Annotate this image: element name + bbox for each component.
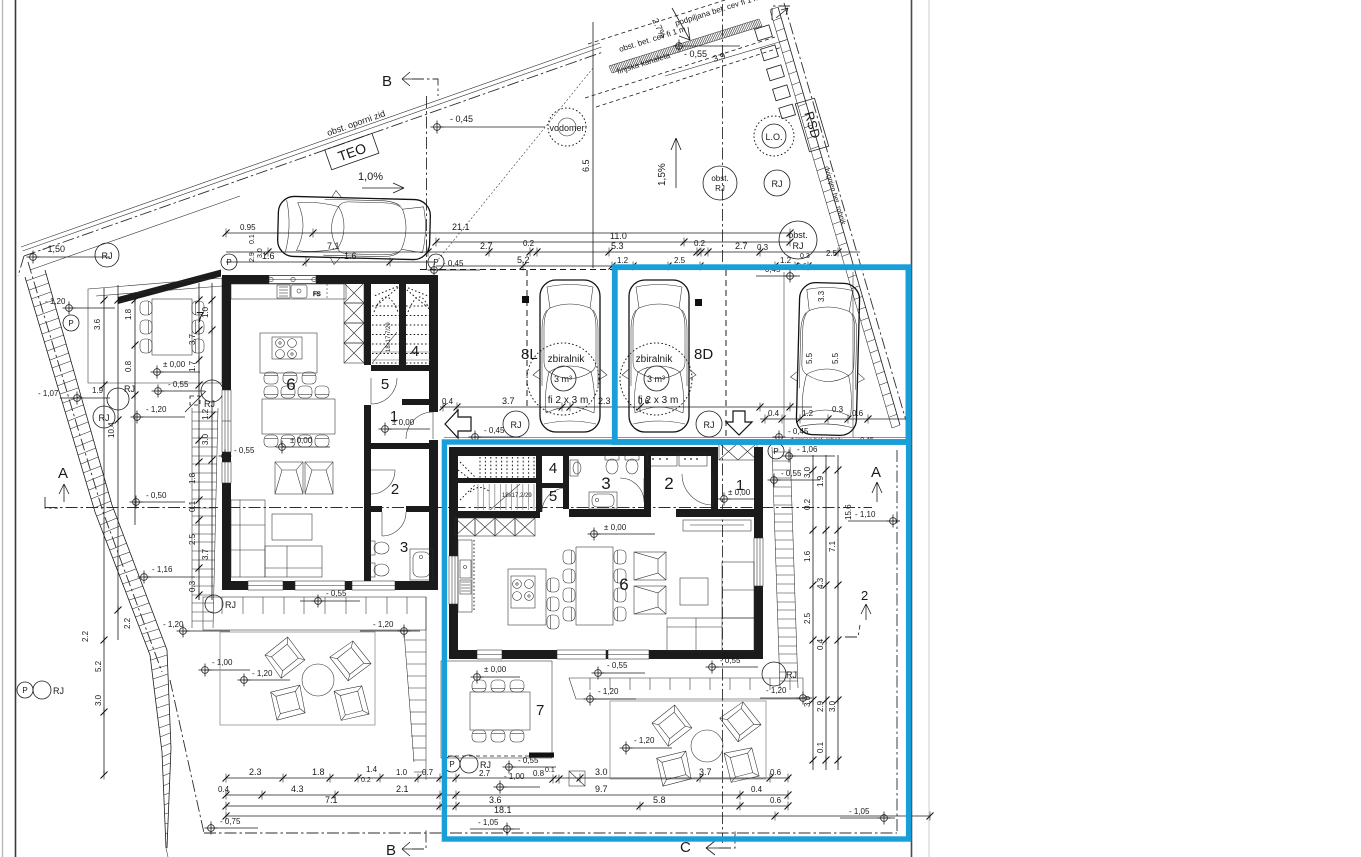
svg-text:1.2: 1.2 [802, 409, 814, 418]
svg-text:1.2: 1.2 [201, 408, 210, 420]
svg-text:18x17,2/29: 18x17,2/29 [502, 493, 532, 499]
svg-text:- 0,55: - 0,55 [607, 661, 628, 670]
svg-text:3.7: 3.7 [699, 767, 712, 777]
svg-text:RJ: RJ [204, 399, 215, 409]
svg-text:3.3: 3.3 [817, 290, 826, 302]
svg-text:2: 2 [664, 474, 673, 493]
svg-text:1.4: 1.4 [366, 765, 378, 774]
svg-text:± 0,00: ± 0,00 [163, 360, 186, 369]
svg-text:P: P [773, 447, 778, 456]
svg-text:0.6: 0.6 [770, 796, 782, 805]
svg-text:RJ: RJ [225, 600, 236, 610]
svg-text:0.4: 0.4 [768, 409, 780, 418]
svg-text:4: 4 [411, 343, 419, 360]
svg-text:obst.: obst. [711, 174, 728, 183]
svg-text:- 0,55: - 0,55 [781, 469, 802, 478]
svg-text:2.3: 2.3 [249, 767, 262, 777]
svg-text:1.8: 1.8 [124, 308, 133, 320]
svg-text:- 1,07: - 1,07 [38, 389, 59, 398]
svg-text:0.1: 0.1 [816, 741, 825, 753]
svg-text:3.0: 3.0 [201, 433, 210, 445]
svg-text:- 1,20: - 1,20 [766, 686, 787, 695]
svg-text:0.4: 0.4 [218, 785, 230, 794]
svg-text:2: 2 [391, 481, 399, 498]
svg-text:0.6: 0.6 [638, 397, 650, 406]
svg-text:7: 7 [536, 702, 544, 719]
svg-text:L.O.: L.O. [765, 132, 782, 142]
svg-text:- 0,45: - 0,45 [788, 427, 809, 436]
svg-text:0.8: 0.8 [533, 769, 545, 778]
svg-text:B: B [386, 842, 396, 857]
svg-text:RJ: RJ [704, 420, 715, 430]
svg-text:- 1,05: - 1,05 [849, 807, 870, 816]
svg-text:zbiralnik: zbiralnik [548, 354, 586, 365]
svg-text:- 1,20: - 1,20 [252, 669, 273, 678]
svg-text:4.3: 4.3 [291, 784, 304, 794]
svg-text:RJ: RJ [53, 686, 64, 696]
svg-text:5: 5 [381, 376, 389, 393]
svg-text:- 1,20: - 1,20 [373, 620, 394, 629]
svg-text:- 0,55: - 0,55 [684, 49, 707, 59]
svg-text:3.0: 3.0 [94, 694, 103, 706]
svg-text:- 1,00: - 1,00 [212, 658, 233, 667]
svg-text:RJ: RJ [786, 670, 797, 680]
svg-text:- 0,45: - 0,45 [450, 114, 473, 124]
svg-text:0.2: 0.2 [803, 498, 812, 510]
svg-text:10.4: 10.4 [107, 422, 116, 438]
svg-text:5.3: 5.3 [611, 241, 624, 251]
svg-text:- 1,50: - 1,50 [42, 244, 65, 254]
svg-text:- 0,75: - 0,75 [220, 817, 241, 826]
svg-text:0.4: 0.4 [816, 638, 825, 650]
svg-text:RJ: RJ [772, 179, 783, 189]
svg-text:0.4: 0.4 [442, 397, 454, 406]
svg-text:15.6: 15.6 [844, 504, 853, 520]
svg-text:A: A [871, 464, 881, 481]
svg-text:4.3: 4.3 [816, 577, 825, 589]
svg-text:6: 6 [286, 375, 295, 394]
svg-text:2.7: 2.7 [479, 769, 491, 778]
svg-text:2.9: 2.9 [816, 700, 825, 712]
svg-text:2.5: 2.5 [674, 256, 686, 265]
svg-text:- 1,20: - 1,20 [146, 405, 167, 414]
svg-text:5.8: 5.8 [653, 795, 666, 805]
svg-text:0.3: 0.3 [800, 253, 810, 260]
svg-text:- 0,55: - 0,55 [168, 380, 189, 389]
svg-text:0.6: 0.6 [770, 768, 782, 777]
svg-text:2.5: 2.5 [803, 612, 812, 624]
svg-text:8L: 8L [521, 346, 538, 363]
svg-text:1.8: 1.8 [188, 472, 197, 484]
svg-text:2.9: 2.9 [249, 252, 256, 262]
svg-text:± 0,00: ± 0,00 [484, 665, 507, 674]
svg-text:0.3: 0.3 [188, 580, 197, 592]
svg-text:2.3: 2.3 [598, 396, 611, 406]
svg-text:2.2: 2.2 [123, 617, 132, 629]
svg-text:3 m³: 3 m³ [554, 374, 572, 384]
svg-text:6: 6 [619, 575, 628, 594]
svg-text:7.1: 7.1 [828, 540, 837, 552]
svg-text:1.9: 1.9 [816, 475, 825, 487]
svg-text:RJ: RJ [102, 251, 113, 261]
svg-text:- 0,45: - 0,45 [443, 259, 464, 268]
svg-text:3.0: 3.0 [595, 767, 608, 777]
svg-text:± 0,00: ± 0,00 [290, 436, 313, 445]
svg-text:- 1,20: - 1,20 [634, 736, 655, 745]
svg-text:3.7: 3.7 [201, 548, 210, 560]
svg-text:P: P [226, 258, 231, 267]
svg-text:- 0,50: - 0,50 [146, 491, 167, 500]
svg-text:P: P [449, 760, 454, 769]
svg-text:3.0: 3.0 [257, 248, 264, 258]
svg-text:5.2: 5.2 [94, 660, 103, 672]
svg-text:3 m³: 3 m³ [647, 374, 665, 384]
svg-text:3.0: 3.0 [803, 466, 812, 478]
svg-text:11.0: 11.0 [610, 231, 627, 241]
svg-text:zbiralnik: zbiralnik [636, 354, 674, 365]
svg-text:0.6: 0.6 [852, 409, 864, 418]
svg-text:0.2: 0.2 [694, 239, 706, 248]
svg-text:1.7: 1.7 [188, 360, 197, 372]
svg-text:fi 2 x 3 m: fi 2 x 3 m [548, 395, 589, 406]
svg-text:4: 4 [549, 460, 557, 477]
svg-text:± 0,00: ± 0,00 [604, 523, 627, 532]
svg-text:8D: 8D [694, 346, 713, 363]
svg-text:1.0: 1.0 [396, 768, 408, 777]
svg-text:2.5: 2.5 [826, 249, 838, 258]
svg-text:3.0: 3.0 [828, 700, 837, 712]
svg-text:0.4: 0.4 [751, 785, 763, 794]
svg-text:± 0,00: ± 0,00 [728, 488, 751, 497]
svg-text:0.1: 0.1 [188, 500, 197, 512]
svg-text:5.5: 5.5 [831, 352, 840, 364]
svg-text:- 1,00: - 1,00 [504, 772, 525, 781]
svg-text:18x17,7/29: 18x17,7/29 [386, 322, 392, 352]
svg-text:1.6: 1.6 [803, 550, 812, 562]
svg-text:P: P [22, 686, 27, 695]
svg-text:3: 3 [601, 474, 610, 493]
svg-text:P: P [68, 319, 73, 328]
svg-text:2: 2 [861, 588, 868, 603]
svg-text:0.2: 0.2 [361, 777, 371, 784]
svg-text:1.8: 1.8 [312, 767, 325, 777]
svg-text:0.7: 0.7 [422, 768, 434, 777]
svg-text:3.6: 3.6 [489, 795, 502, 805]
svg-text:0.8: 0.8 [124, 360, 133, 372]
svg-text:- 0,55: - 0,55 [518, 756, 539, 765]
svg-text:2.1: 2.1 [396, 784, 409, 794]
svg-text:1.2: 1.2 [780, 256, 792, 265]
svg-text:RJ: RJ [124, 384, 135, 394]
svg-text:18.1: 18.1 [494, 805, 512, 815]
svg-text:1.2: 1.2 [617, 256, 629, 265]
svg-text:7.1: 7.1 [325, 795, 338, 805]
svg-text:- 0,55: - 0,55 [326, 589, 347, 598]
svg-text:- 0,55: - 0,55 [234, 446, 255, 455]
svg-text:0.3: 0.3 [757, 243, 769, 252]
svg-text:3.7: 3.7 [188, 333, 197, 345]
svg-text:0.3: 0.3 [832, 405, 844, 414]
svg-text:0.95: 0.95 [240, 223, 256, 232]
svg-text:9.7: 9.7 [595, 784, 608, 794]
svg-text:5: 5 [549, 488, 557, 505]
svg-text:RJ: RJ [793, 241, 804, 251]
svg-text:2.7: 2.7 [480, 241, 493, 251]
svg-text:B: B [382, 73, 392, 90]
svg-text:- 1,06: - 1,06 [797, 445, 818, 454]
svg-text:RJ: RJ [511, 420, 522, 430]
svg-text:6.5: 6.5 [581, 159, 591, 172]
svg-text:1,5%: 1,5% [657, 163, 668, 186]
svg-text:2.7: 2.7 [735, 241, 748, 251]
svg-text:A: A [58, 465, 68, 482]
svg-text:3.6: 3.6 [93, 318, 102, 330]
svg-text:5.2: 5.2 [517, 255, 530, 265]
svg-text:- 1,10: - 1,10 [855, 510, 876, 519]
svg-text:3.7: 3.7 [502, 396, 515, 406]
svg-text:± 0,00: ± 0,00 [392, 418, 415, 427]
svg-text:2.5: 2.5 [188, 533, 197, 545]
svg-text:vodomer: vodomer [549, 123, 584, 133]
svg-text:- 1,20: - 1,20 [598, 687, 619, 696]
svg-text:RJ: RJ [715, 184, 725, 193]
svg-text:- 0,45: - 0,45 [484, 426, 505, 435]
svg-text:21.1: 21.1 [452, 222, 470, 232]
svg-text:FS: FS [313, 292, 321, 298]
svg-text:0.1: 0.1 [545, 767, 555, 774]
svg-text:0.2: 0.2 [523, 239, 535, 248]
svg-text:- 0,55: - 0,55 [720, 656, 741, 665]
svg-text:5.5: 5.5 [805, 352, 814, 364]
svg-text:- 1,16: - 1,16 [152, 565, 173, 574]
svg-text:1,0%: 1,0% [358, 171, 383, 183]
svg-text:0.1: 0.1 [249, 234, 256, 244]
svg-text:1.0: 1.0 [201, 306, 210, 318]
svg-text:2.2: 2.2 [81, 630, 90, 642]
svg-text:- 1,20: - 1,20 [163, 620, 184, 629]
svg-text:- 1,05: - 1,05 [478, 818, 499, 827]
svg-text:- 1,20: - 1,20 [45, 297, 66, 306]
svg-text:3: 3 [400, 539, 408, 556]
